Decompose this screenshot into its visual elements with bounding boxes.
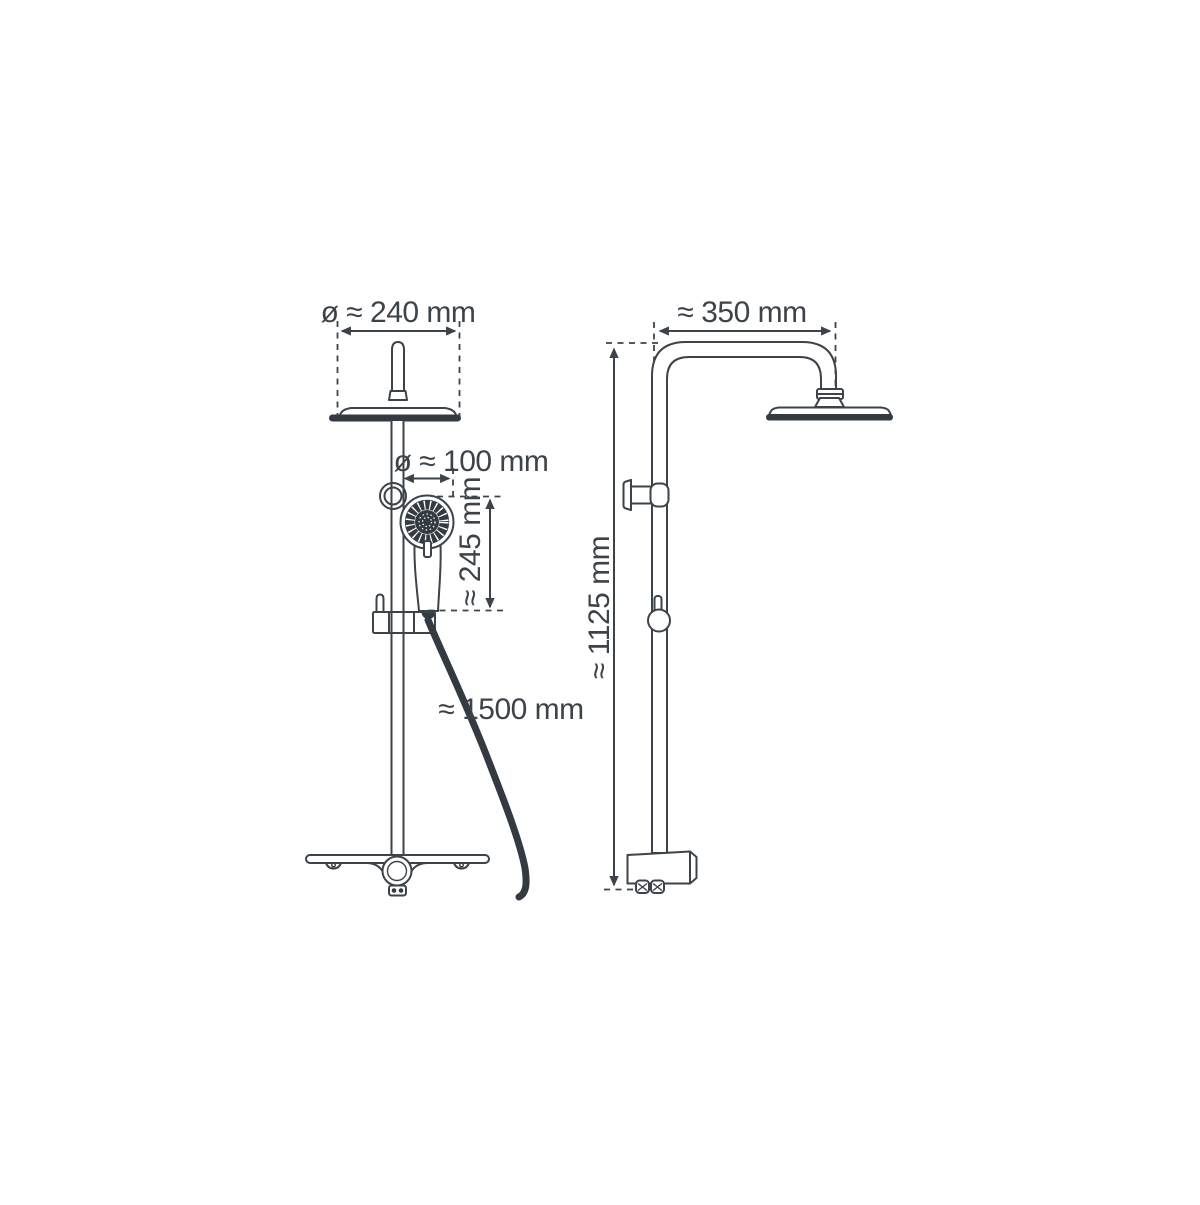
hose-connection-nut [636, 881, 649, 894]
shower-head-disc-side [769, 408, 891, 416]
bracket-pin [377, 595, 384, 613]
box-body [628, 852, 697, 884]
wall-plate [624, 480, 632, 510]
knob-knurl-dot [399, 888, 404, 893]
hose-connection-nut [651, 881, 664, 894]
slider-wheel [648, 610, 670, 632]
shower-head-spray-face-side [766, 414, 893, 421]
dim-label-head-diameter: ø ≈ 240 mm [321, 296, 476, 329]
spray-mode-lever [424, 541, 431, 557]
riser-pipe-top [392, 342, 404, 392]
technical-drawing-page: ø ≈ 240 mm [0, 0, 1200, 1200]
dim-label-hose-length: ≈ 1500 mm [438, 693, 583, 726]
head-connector [389, 391, 407, 400]
dim-label-arm-reach: ≈ 350 mm [677, 296, 806, 329]
dim-label-hand-diameter: ø ≈ 100 mm [394, 445, 549, 478]
dim-label-column-height: ≈ 1125 mm [583, 536, 616, 679]
shower-system-diagram: ø ≈ 240 mm [0, 0, 1200, 1200]
shower-head-spray-face [329, 415, 461, 422]
shower-head-disc [340, 408, 456, 416]
pipe-clamp [651, 484, 669, 507]
knob-knurl-dot [392, 888, 397, 893]
diverter-knob [389, 886, 406, 896]
dim-label-hand-length: ≈ 245 mm [454, 477, 487, 606]
head-mount [815, 398, 844, 407]
